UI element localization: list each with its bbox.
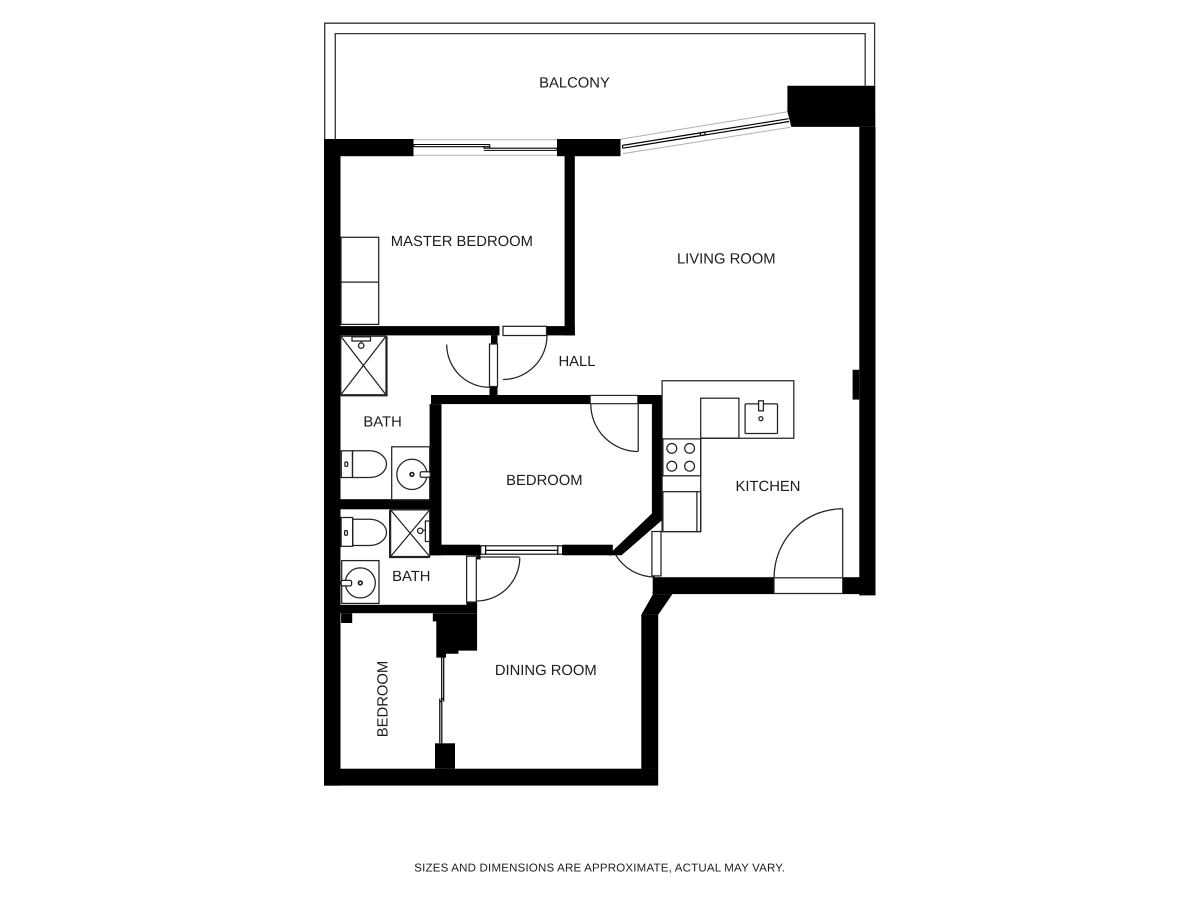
svg-text:MASTER BEDROOM: MASTER BEDROOM — [391, 234, 533, 250]
svg-text:BEDROOM: BEDROOM — [376, 661, 392, 737]
svg-text:KITCHEN: KITCHEN — [736, 479, 801, 495]
svg-text:BATH: BATH — [363, 415, 401, 431]
svg-text:DINING ROOM: DINING ROOM — [495, 663, 597, 679]
svg-text:LIVING ROOM: LIVING ROOM — [677, 252, 776, 268]
svg-text:HALL: HALL — [558, 354, 595, 370]
svg-text:BATH: BATH — [392, 569, 430, 585]
svg-text:BALCONY: BALCONY — [539, 76, 610, 92]
svg-text:SIZES AND DIMENSIONS ARE APPRO: SIZES AND DIMENSIONS ARE APPROXIMATE, AC… — [414, 862, 785, 874]
svg-text:BEDROOM: BEDROOM — [506, 473, 582, 489]
